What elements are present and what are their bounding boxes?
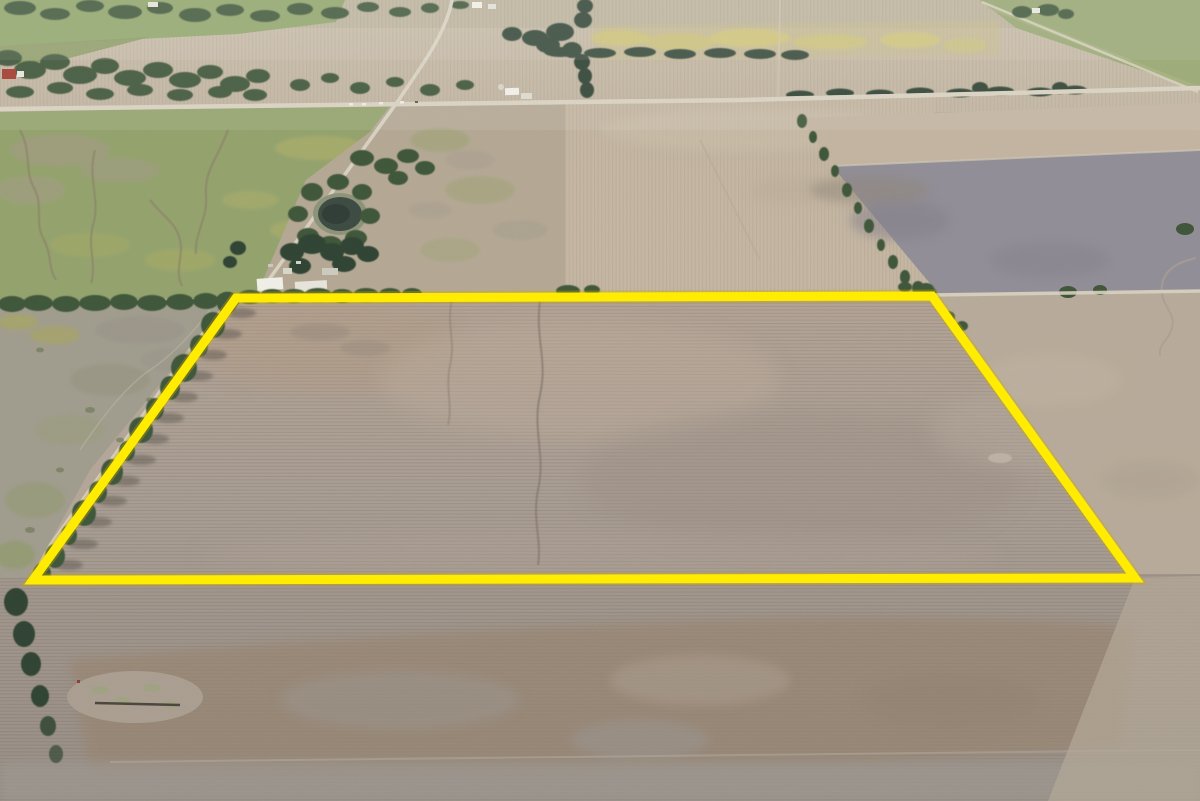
- aerial-photo: [0, 0, 1200, 801]
- photo-grain: [0, 0, 1200, 801]
